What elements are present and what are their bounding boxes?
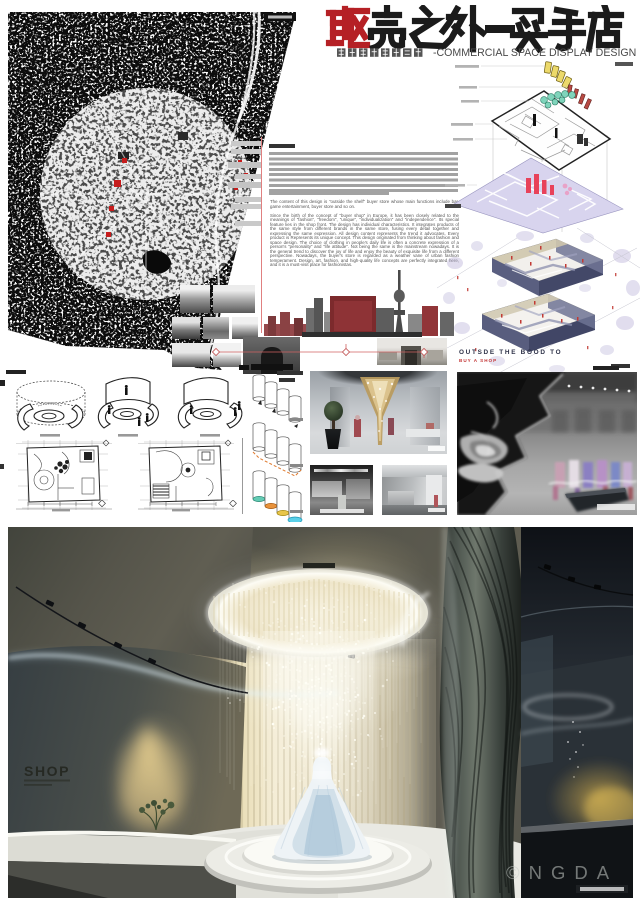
svg-text:©NGDA: ©NGDA bbox=[506, 862, 618, 883]
svg-text:OUTSDE THE BOOD TO: OUTSDE THE BOOD TO bbox=[459, 349, 562, 356]
svg-text:SHOP: SHOP bbox=[24, 763, 70, 779]
svg-text:BUY A SHOP: BUY A SHOP bbox=[459, 358, 497, 363]
